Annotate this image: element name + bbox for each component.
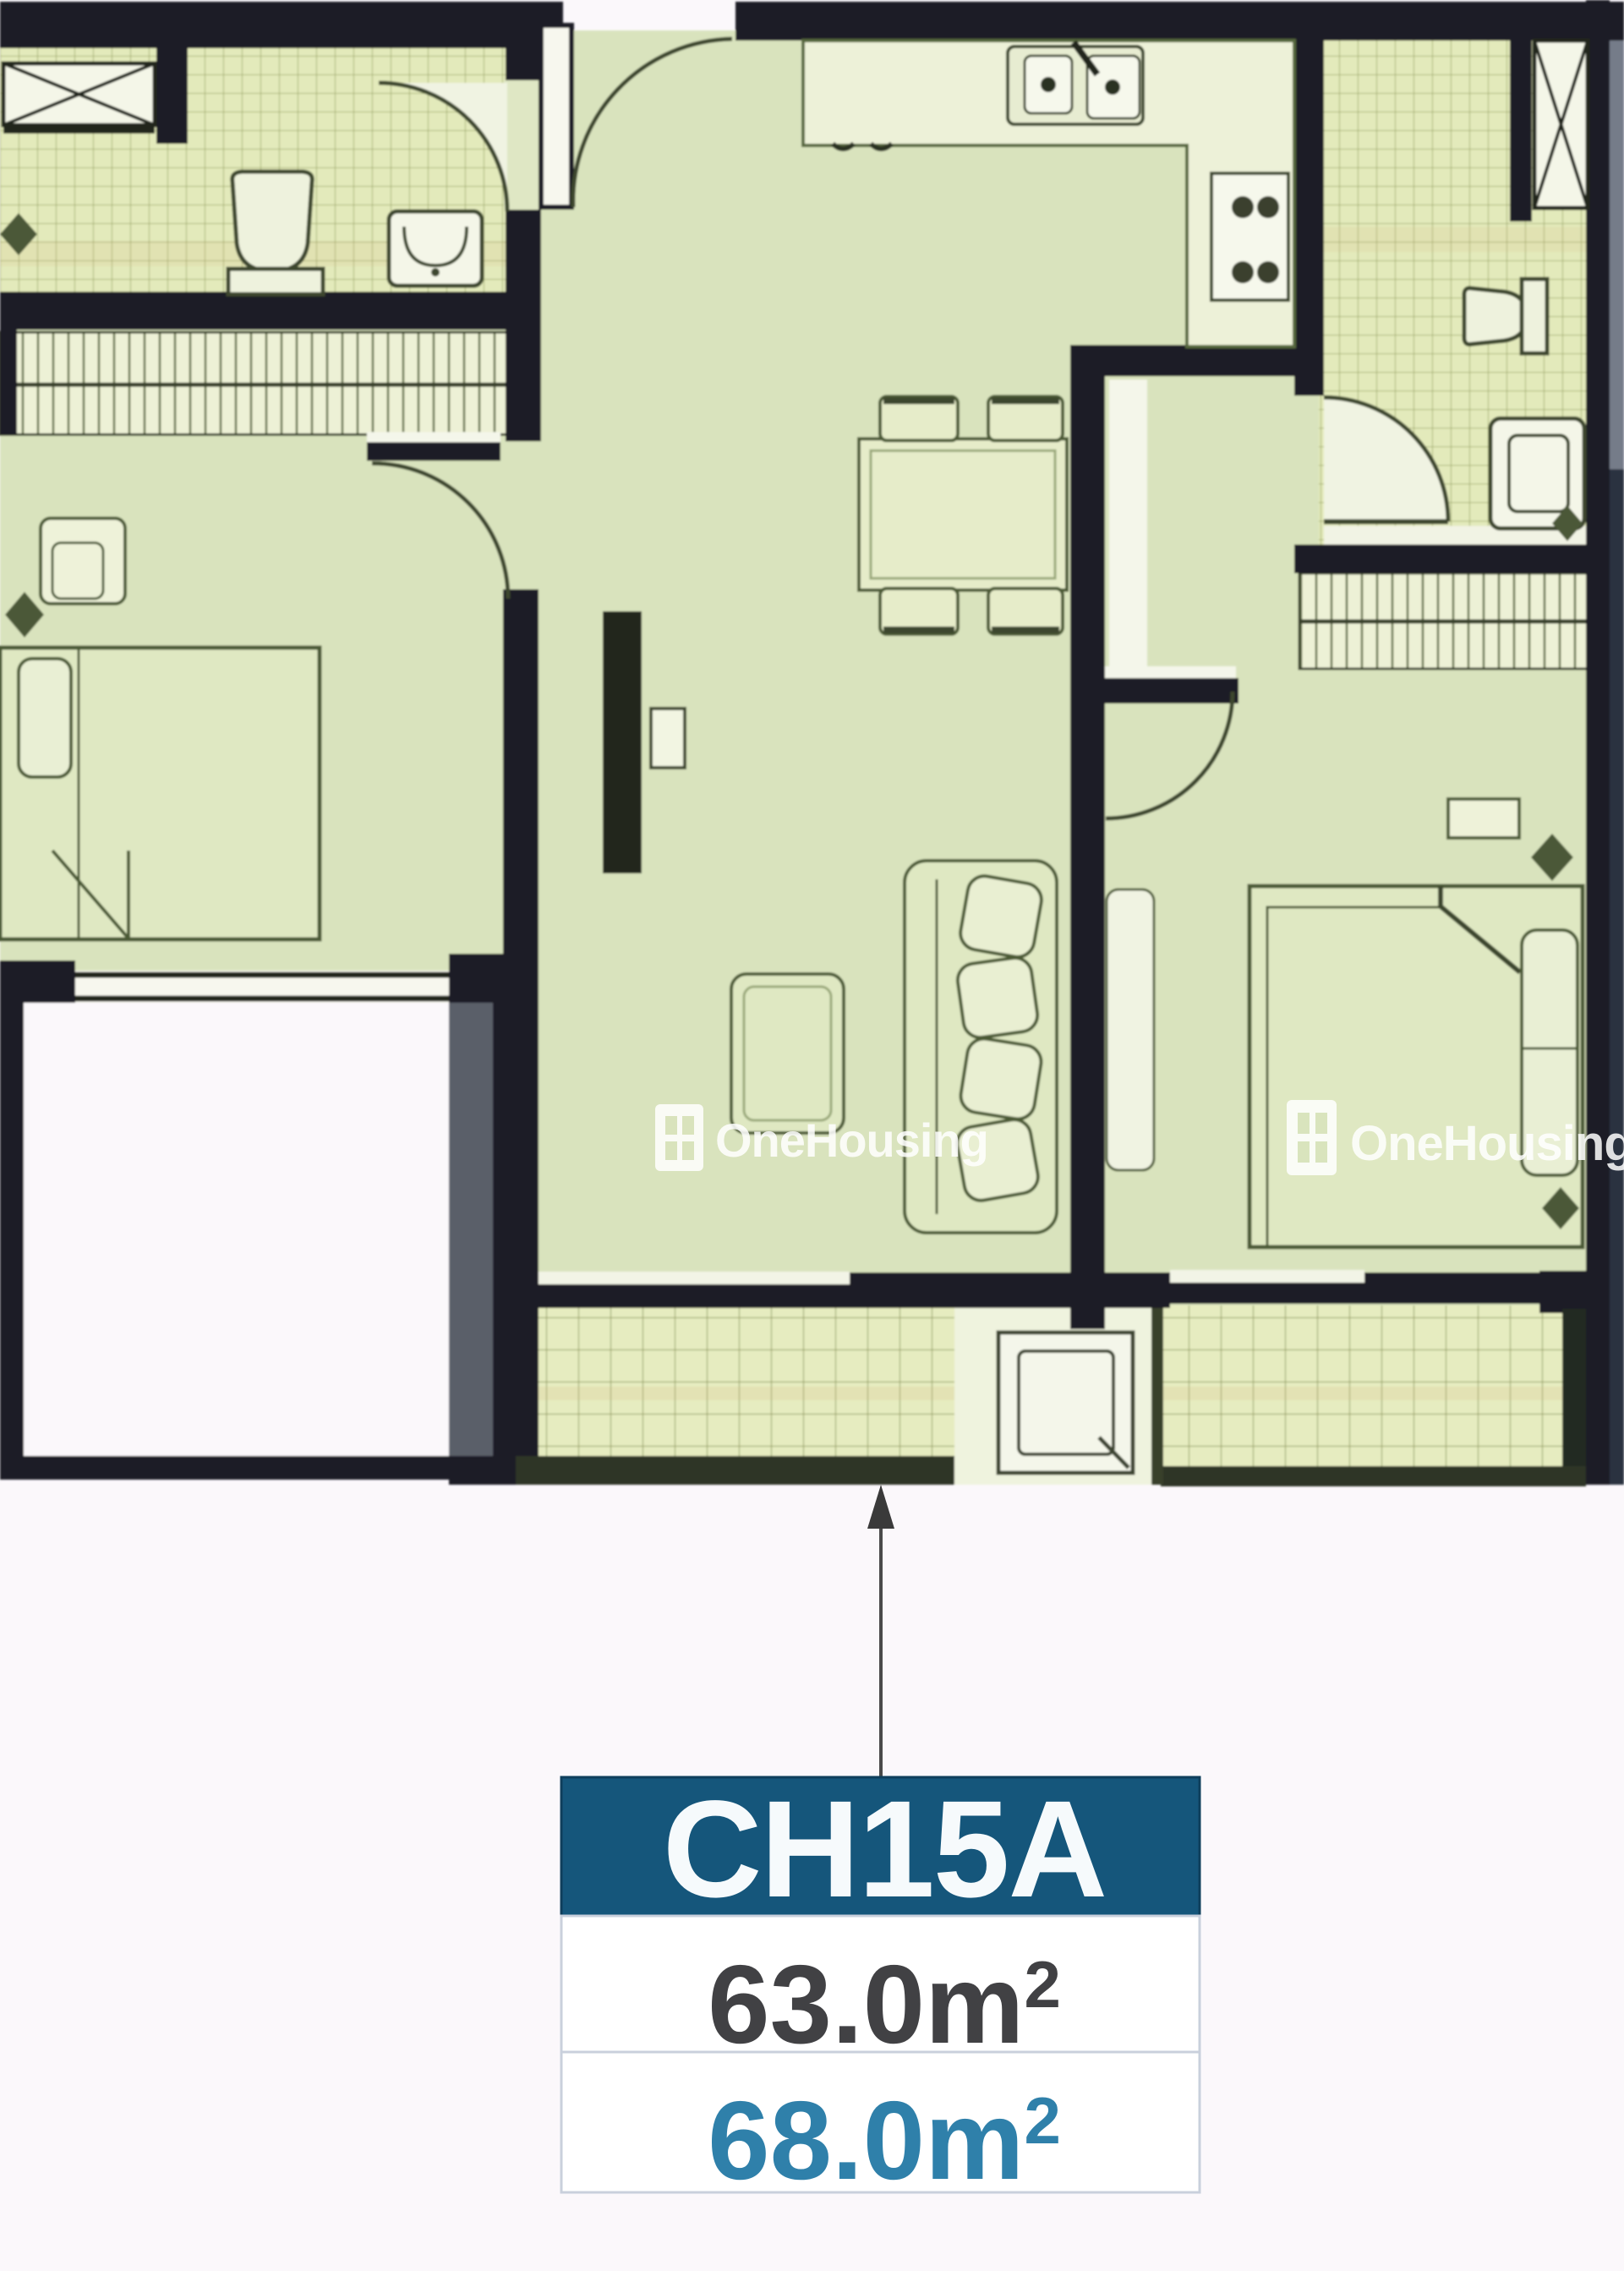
svg-text:OneHousing: OneHousing: [715, 1114, 988, 1167]
svg-text:68.0m2: 68.0m2: [708, 2078, 1061, 2203]
svg-text:CH15A: CH15A: [663, 1771, 1106, 1926]
svg-text:63.0m2: 63.0m2: [708, 1942, 1061, 2066]
svg-text:OneHousing: OneHousing: [1350, 1116, 1624, 1171]
